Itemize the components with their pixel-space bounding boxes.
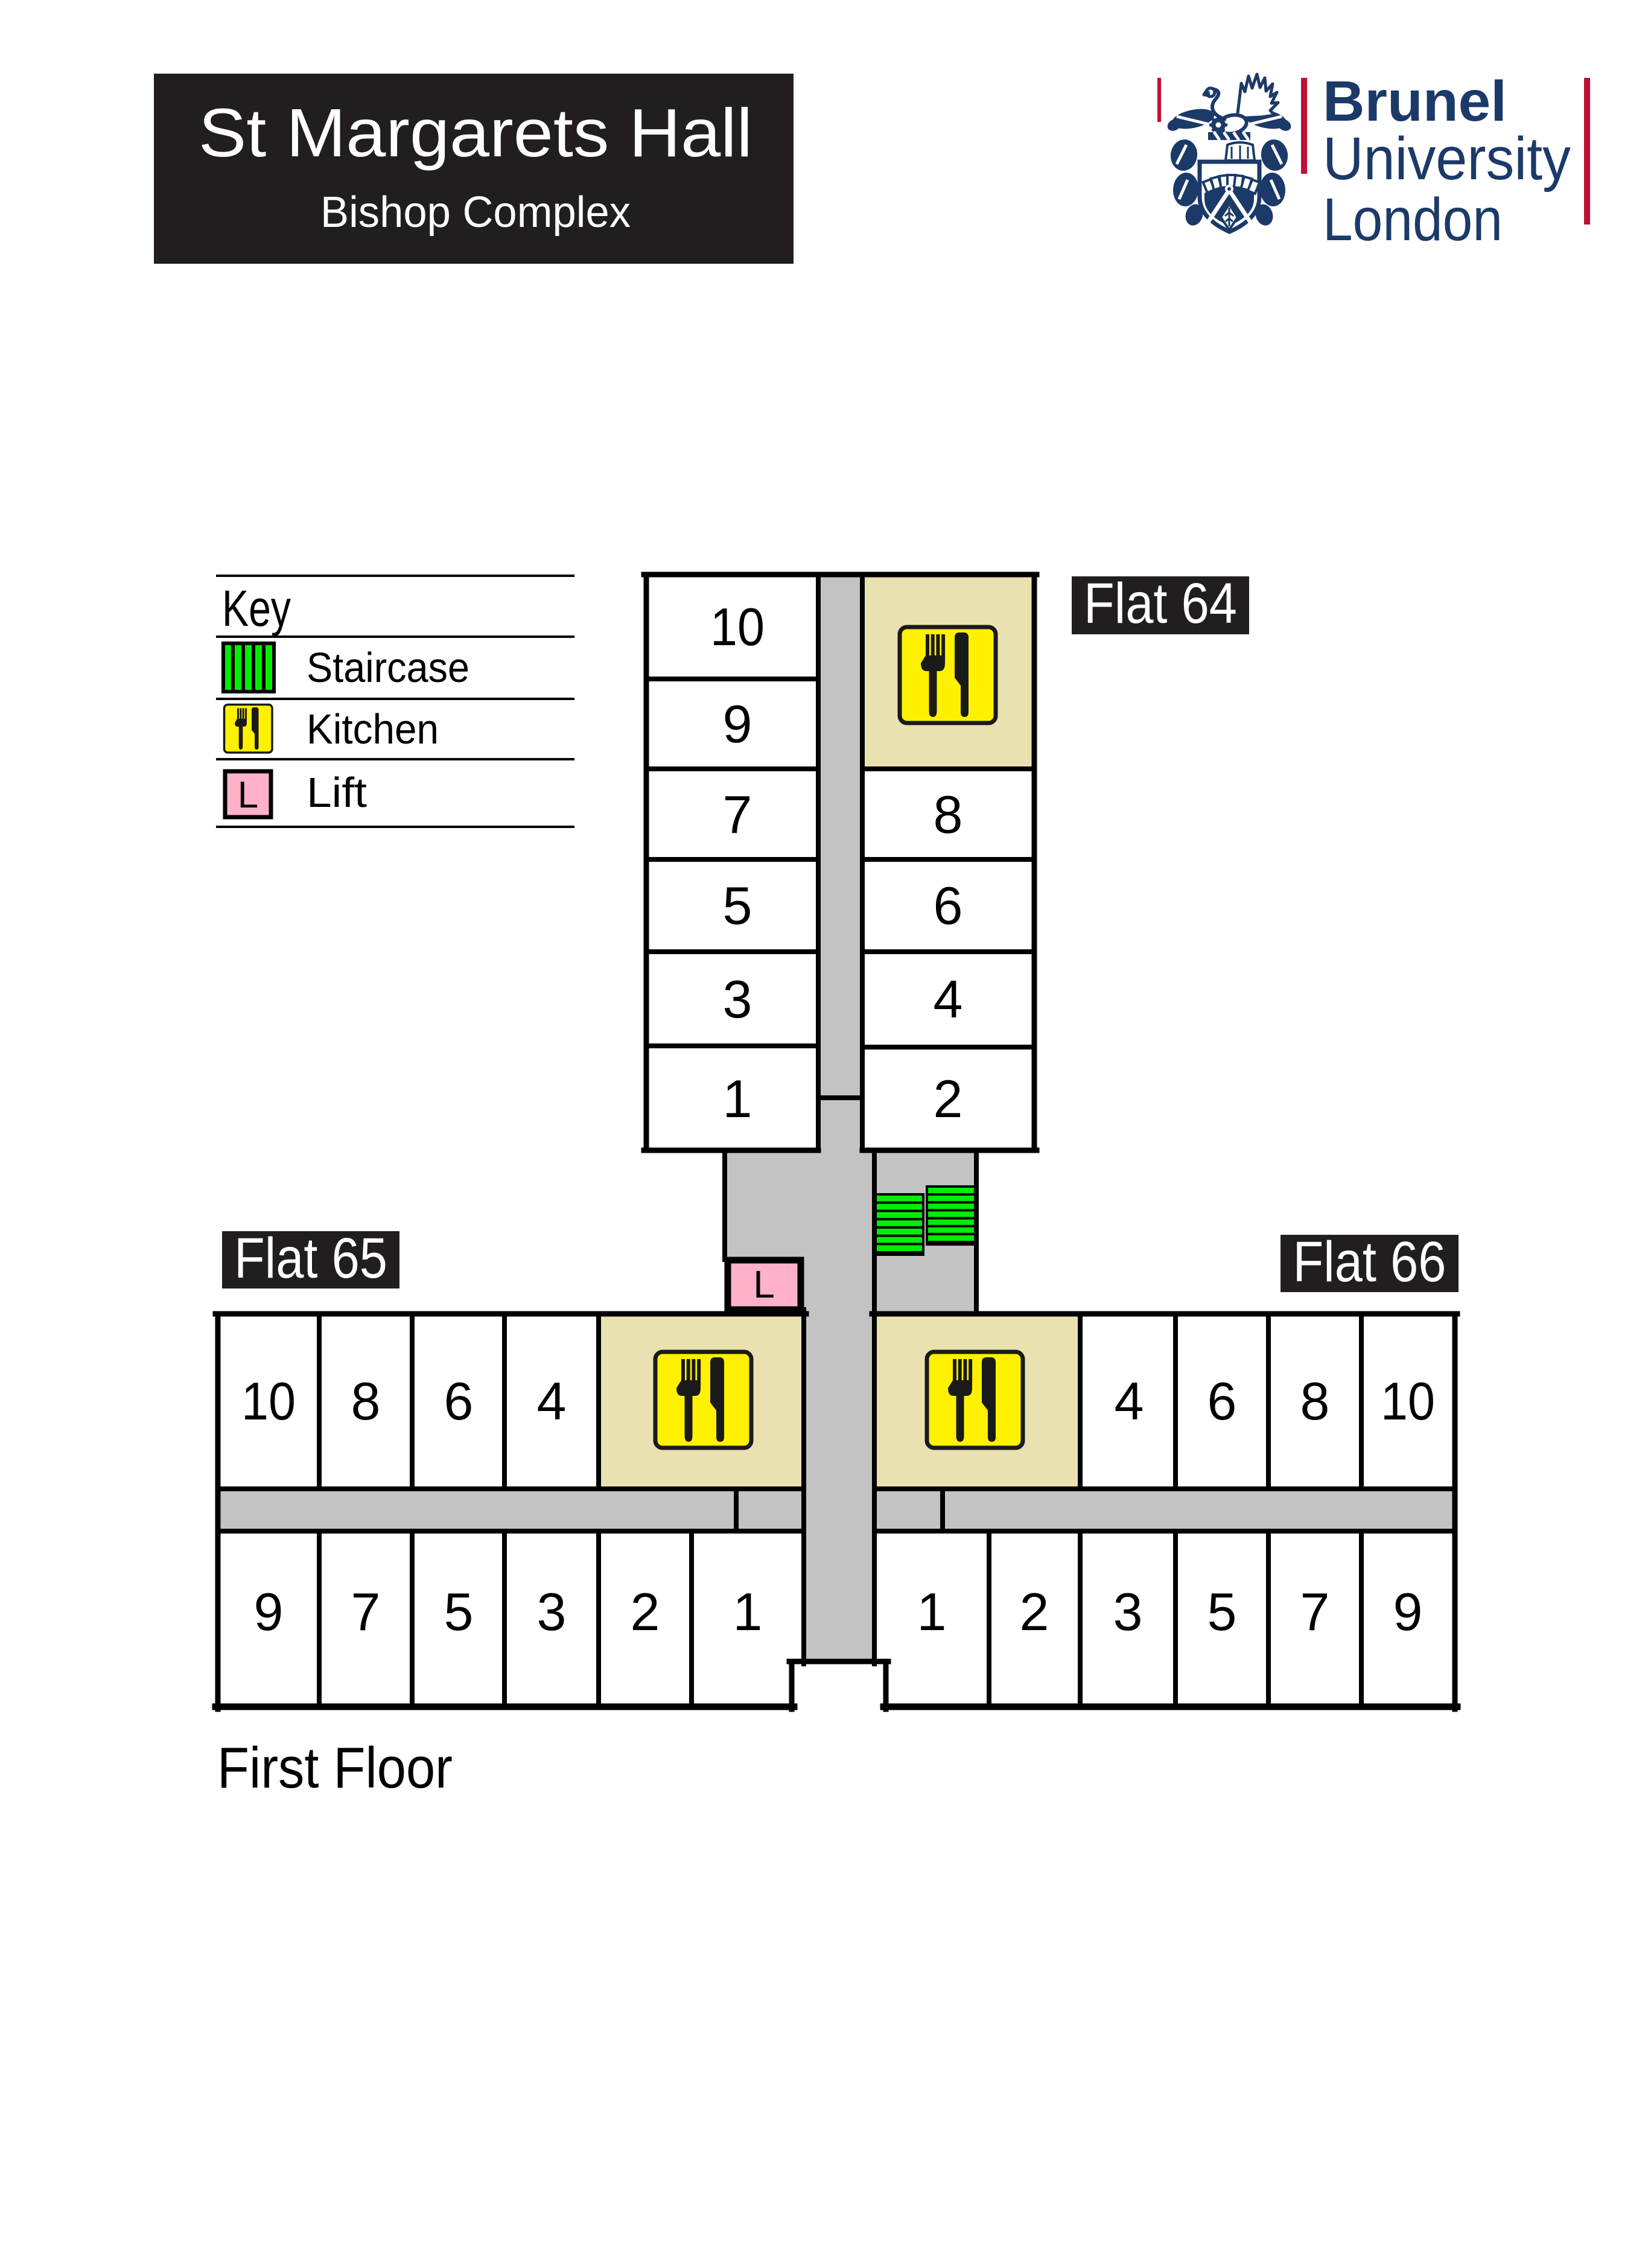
- svg-text:8: 8: [351, 1371, 381, 1431]
- svg-text:10: 10: [1381, 1371, 1435, 1431]
- svg-text:Brunel: Brunel: [1323, 69, 1507, 133]
- svg-text:6: 6: [934, 876, 963, 935]
- svg-text:L: L: [238, 774, 258, 816]
- svg-text:London: London: [1323, 186, 1503, 253]
- svg-text:First Floor: First Floor: [217, 1736, 453, 1800]
- svg-text:Lift: Lift: [307, 769, 367, 816]
- svg-text:St Margarets Hall: St Margarets Hall: [199, 95, 752, 171]
- svg-text:Key: Key: [222, 580, 291, 637]
- svg-text:10: 10: [241, 1371, 296, 1431]
- svg-text:6: 6: [444, 1371, 474, 1431]
- svg-text:5: 5: [444, 1582, 474, 1642]
- svg-text:4: 4: [1115, 1371, 1144, 1431]
- svg-text:8: 8: [1300, 1371, 1330, 1431]
- svg-text:L: L: [753, 1263, 775, 1306]
- svg-text:Flat 66: Flat 66: [1293, 1230, 1446, 1294]
- svg-text:1: 1: [723, 1069, 752, 1129]
- svg-text:9: 9: [723, 694, 752, 754]
- svg-text:7: 7: [351, 1582, 381, 1642]
- svg-text:7: 7: [723, 785, 752, 844]
- svg-text:Bishop Complex: Bishop Complex: [320, 188, 631, 237]
- svg-text:5: 5: [723, 876, 752, 935]
- svg-text:3: 3: [723, 969, 752, 1029]
- svg-text:3: 3: [537, 1582, 567, 1642]
- svg-text:Flat 65: Flat 65: [234, 1226, 387, 1290]
- svg-text:6: 6: [1207, 1371, 1237, 1431]
- svg-text:9: 9: [1393, 1582, 1423, 1642]
- svg-text:5: 5: [1207, 1582, 1237, 1642]
- svg-text:3: 3: [1113, 1582, 1143, 1642]
- svg-text:9: 9: [254, 1582, 284, 1642]
- svg-text:7: 7: [1300, 1582, 1330, 1642]
- svg-text:1: 1: [917, 1582, 947, 1642]
- svg-text:University: University: [1323, 125, 1571, 193]
- svg-text:4: 4: [537, 1371, 567, 1431]
- svg-text:Flat 64: Flat 64: [1084, 572, 1237, 635]
- svg-text:4: 4: [934, 969, 963, 1029]
- svg-text:2: 2: [934, 1069, 963, 1129]
- svg-text:8: 8: [934, 785, 963, 844]
- svg-text:10: 10: [710, 597, 765, 657]
- svg-text:2: 2: [1020, 1582, 1049, 1642]
- svg-text:Staircase: Staircase: [307, 644, 469, 691]
- svg-text:1: 1: [733, 1582, 763, 1642]
- svg-text:2: 2: [631, 1582, 660, 1642]
- svg-text:Kitchen: Kitchen: [307, 706, 439, 753]
